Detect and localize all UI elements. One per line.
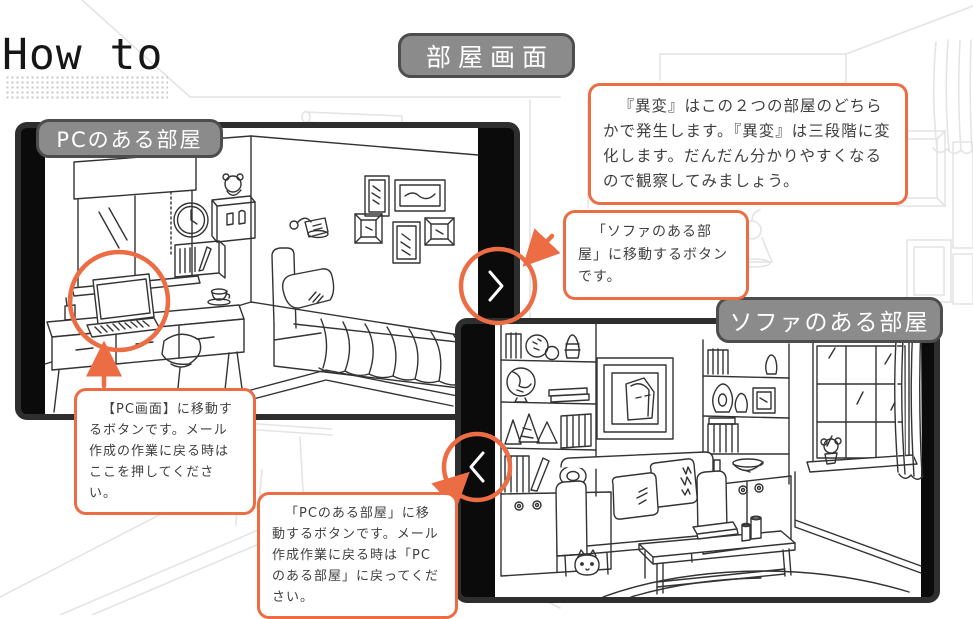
callout-sofa-button-text: 「ソファのある部屋」に移動するボタンです。 — [578, 221, 734, 289]
chevron-right-icon — [479, 264, 517, 308]
callout-pc-screen-button-note: 【PC画面】に移動するボタンです。メール作成の作業に戻る時はここを押してください… — [74, 388, 256, 515]
callout-anomaly-text: 『異変』はこの２つの部屋のどちらかで発生します。『異変』は三段階に変化します。だ… — [603, 94, 893, 194]
room-screen-label: 部屋画面 — [398, 33, 575, 78]
callout-pc-room-button-note: 「PCのある部屋」に移動するボタンです。メール作成作業に戻る時は「PCのある部屋… — [257, 492, 458, 619]
callout-anomaly-note: 『異変』はこの２つの部屋のどちらかで発生します。『異変』は三段階に変化します。だ… — [588, 83, 908, 205]
pc-room-label: PCのある部屋 — [36, 119, 223, 158]
page-title: How to — [2, 34, 163, 77]
sofa-room-label: ソファのある部屋 — [716, 297, 943, 343]
pc-room-illustration — [21, 128, 514, 414]
sofa-room-screenshot — [455, 318, 940, 603]
callout-sofa-button-note: 「ソファのある部屋」に移動するボタンです。 — [563, 210, 749, 300]
callout-pc-room-button-text: 「PCのある部屋」に移動するボタンです。メール作成作業に戻る時は「PCのある部屋… — [272, 503, 443, 608]
sofa-room-illustration — [461, 324, 934, 597]
callout-pc-screen-button-text: 【PC画面】に移動するボタンです。メール作成の作業に戻る時はここを押してください… — [89, 399, 241, 504]
go-to-pc-room-button[interactable] — [458, 445, 496, 489]
chevron-left-icon — [458, 445, 496, 489]
go-to-sofa-room-button[interactable] — [479, 264, 517, 308]
pc-room-screenshot — [15, 122, 520, 420]
tutorial-page: { "title": "How to", "header_label": "部屋… — [0, 0, 973, 615]
